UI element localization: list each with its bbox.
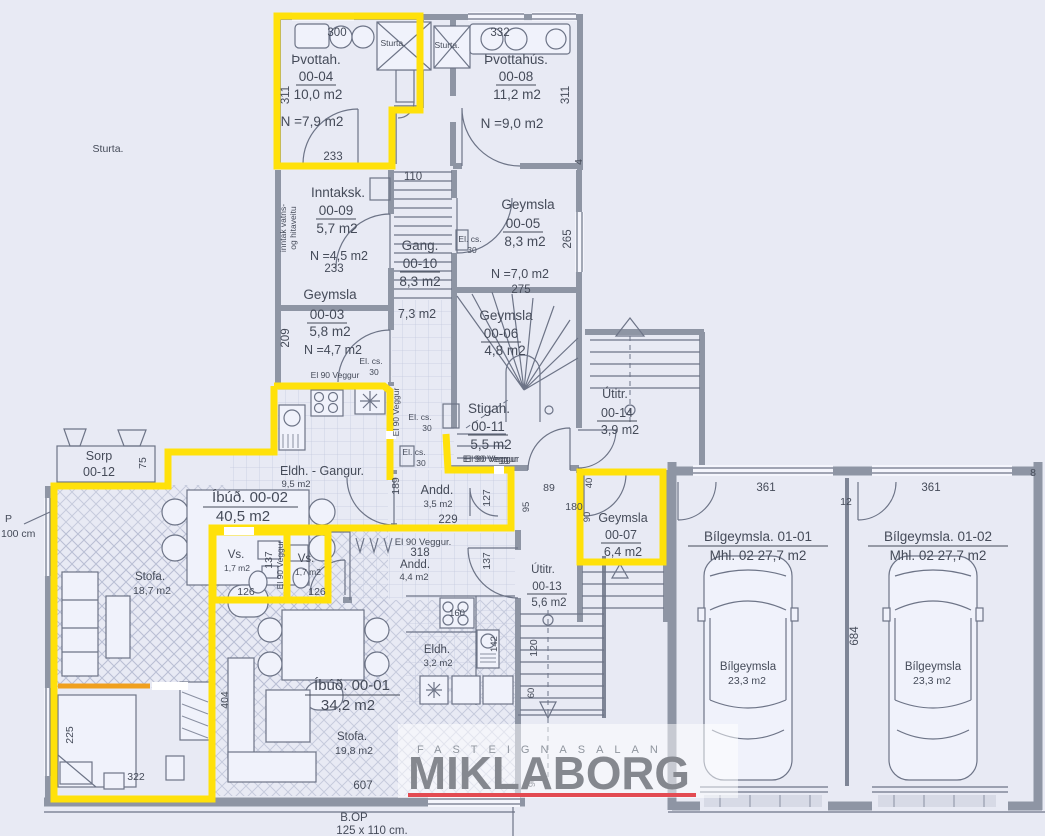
- garage-01-01-sub: Mhl. 02 27,7 m2: [710, 548, 807, 563]
- room-label-00-14-area: 3,9 m2: [601, 423, 639, 437]
- room-label-00-10-area2: 7,3 m2: [398, 307, 436, 321]
- room-label-eldh-01-area: 3,2 m2: [423, 658, 452, 669]
- window-top-2: [468, 12, 524, 21]
- el90-note: El 90 Veggur: [311, 370, 360, 380]
- el-cs-note: 30: [369, 367, 379, 377]
- garage-01-02-inner: Bílgeymsla: [905, 661, 962, 673]
- el-cs-note: 30: [467, 245, 477, 255]
- room-label-00-11-code: 00-11: [471, 419, 505, 434]
- rect-shape: [698, 608, 705, 621]
- el90-note: El 90 Veggur: [275, 540, 285, 589]
- room-label-andd35: Andd.: [421, 483, 454, 497]
- room-label-00-10-area: 8,3 m2: [399, 274, 440, 289]
- room-label-00-03-name: Geymsla: [303, 287, 357, 302]
- dim: 265: [562, 229, 574, 248]
- circle-shape: [258, 618, 282, 642]
- rect-shape: [976, 608, 983, 621]
- dim: 311: [560, 86, 572, 104]
- dim: 4: [573, 159, 585, 165]
- garage-01-02-title: Bílgeymsla. 01-02: [884, 529, 992, 544]
- room-label-00-13-name: Útitr.: [531, 563, 555, 576]
- room-label-eldh-gangur: Eldh. - Gangur.: [280, 464, 364, 478]
- room-label-00-10-code: 00-10: [403, 256, 438, 271]
- dim: 180: [565, 501, 583, 513]
- dim: 404: [219, 691, 231, 709]
- dim: 209: [280, 328, 292, 347]
- room-label-00-08-code: 00-08: [499, 69, 534, 84]
- dim: 318: [410, 547, 429, 559]
- circle-shape: [365, 618, 389, 642]
- room-label-00-07-code: 00-07: [605, 528, 637, 542]
- room-label-00-09-name: Inntaksk.: [311, 185, 365, 200]
- fridge-icon: [452, 676, 480, 704]
- dim: 89: [543, 482, 555, 494]
- room-label-vs2: Vs.: [298, 553, 315, 565]
- room-label-00-14-code: 00-14: [601, 406, 633, 420]
- garage-01-02-inner-area: 23,3 m2: [913, 675, 951, 687]
- room-label-00-05-net: N =7,0 m2: [491, 267, 549, 281]
- bop-label: B.OP: [340, 812, 368, 824]
- room-label-00-05-area: 8,3 m2: [504, 234, 545, 249]
- dim: 300: [327, 27, 346, 39]
- apartment-00-01-area: 34,2 m2: [321, 697, 375, 714]
- dim: 127: [481, 489, 493, 507]
- rect-shape: [62, 572, 98, 676]
- rect-shape: [575, 212, 584, 272]
- rect-shape: [166, 756, 184, 780]
- rect-shape: [872, 465, 1012, 476]
- el-cs-note: 30: [422, 423, 432, 433]
- room-label-00-12-name: Sorp: [86, 449, 112, 463]
- rect-shape: [228, 658, 254, 758]
- brand-logo-text: MIKLABORG: [408, 747, 690, 799]
- room-label-00-06-code: 00-06: [484, 326, 519, 341]
- rect-shape: [60, 762, 92, 784]
- room-label-stofa-01-area: 19,8 m2: [335, 745, 373, 757]
- room-label-vs1-area: 1,7 m2: [224, 563, 250, 573]
- rect-shape: [468, 12, 524, 21]
- intake-note: og hitaveitu: [288, 206, 298, 250]
- el90-note: El 90 Veggur: [391, 387, 401, 436]
- sturta-label: Sturta.: [93, 143, 124, 155]
- sink-basin-icon: [546, 29, 566, 49]
- room-label-00-05-name: Geymsla: [501, 197, 555, 212]
- room-label-00-12-code: 00-12: [83, 465, 115, 479]
- dim: 361: [756, 482, 775, 494]
- room-label-eldh-01: Eldh.: [424, 644, 450, 656]
- dim: 684: [849, 626, 861, 646]
- room-label-00-13-area: 5,6 m2: [531, 597, 566, 609]
- garage-01-01-inner: Bílgeymsla: [720, 661, 777, 673]
- room-label-andd44: Andd.: [400, 559, 430, 571]
- dining-table-icon: [282, 610, 364, 680]
- rect-shape: [791, 608, 798, 621]
- dim: 120: [528, 639, 540, 657]
- dim: 311: [280, 86, 292, 104]
- room-label-stofa-02: Stofa.: [135, 571, 165, 583]
- dim: 225: [64, 726, 76, 744]
- floor-plan-page: 300 332 311 311 4 233 110 233 275 265 20…: [0, 0, 1045, 836]
- room-label-00-04-name: Þvottah.: [291, 52, 341, 67]
- room-label-00-08-area: 11,2 m2: [493, 87, 541, 102]
- path-shape: [360, 391, 380, 411]
- circle-shape: [162, 499, 188, 525]
- dim: 126: [237, 586, 255, 598]
- room-label-00-11-name: Stigah.: [468, 401, 510, 416]
- room-label-stofa-02-area: 18,7 m2: [133, 585, 171, 597]
- room-label-vs2-area: 1,7 m2: [295, 567, 321, 577]
- room-label-andd35-area: 3,5 m2: [423, 499, 452, 510]
- dim: 126: [308, 586, 326, 598]
- room-label-00-04-net: N =7,9 m2: [281, 114, 344, 129]
- p-label: P: [5, 513, 12, 525]
- garage-window-1: [693, 465, 833, 476]
- room-label-andd44-area: 4,4 m2: [399, 572, 428, 583]
- path-shape: [426, 682, 442, 698]
- intake-note: inntak vatns-: [278, 204, 288, 252]
- bop-size-label: 125 x 110 cm.: [336, 825, 407, 836]
- room-label-00-09-net: N =4,5 m2: [310, 249, 368, 263]
- room-label-00-14-name: Útitr.: [602, 386, 628, 401]
- rect-shape: [180, 682, 210, 740]
- apartment-00-02-area: 40,5 m2: [216, 508, 270, 525]
- dim: 229: [438, 514, 457, 526]
- room-label-00-07-area: 6,4 m2: [604, 545, 642, 559]
- room-label-00-06-name: Geymsla: [479, 308, 533, 323]
- dim: 361: [921, 482, 940, 494]
- apartment-00-01-title: Íbúð. 00-01: [314, 677, 390, 694]
- circle-shape: [309, 499, 335, 525]
- dim: 12: [840, 496, 852, 508]
- room-label-00-13-code: 00-13: [532, 581, 561, 593]
- rect-shape: [883, 608, 890, 621]
- garage-01-02-sub: Mhl. 02 27,7 m2: [890, 548, 987, 563]
- room-label-00-03-net: N =4,7 m2: [304, 343, 362, 357]
- wardrobe-icon: [180, 682, 210, 740]
- washer-counter-icon: [295, 24, 329, 48]
- rect-shape: [228, 752, 316, 782]
- el-cs-note: El. cs.: [402, 447, 425, 457]
- room-label-00-08-net: N =9,0 m2: [481, 116, 544, 131]
- dim: 60: [526, 688, 537, 699]
- window-top-3: [532, 12, 576, 21]
- room-label-00-11-area: 5,5 m2: [470, 437, 511, 452]
- dim: 40: [584, 478, 595, 489]
- garage-01-01-inner-area: 23,3 m2: [728, 675, 766, 687]
- room-label-00-09-code: 00-09: [319, 203, 354, 218]
- dim: 137: [263, 551, 275, 569]
- room-label-00-08-name: Þvottahús.: [484, 52, 548, 67]
- garage-01-01-title: Bílgeymsla. 01-01: [704, 529, 812, 544]
- ottoman-icon: [266, 690, 310, 742]
- apartment-00-02-title: Íbúð. 00-02: [212, 489, 288, 506]
- p-size-label: 100 cm: [1, 528, 36, 540]
- dim: 160: [449, 608, 465, 619]
- dim: 189: [390, 477, 402, 495]
- room-label-00-03-code: 00-03: [310, 307, 345, 322]
- room-label-00-06-area: 4,8 m2: [484, 343, 525, 358]
- garage-window-2: [872, 465, 1012, 476]
- fridge-icon: [483, 676, 513, 704]
- window-right-265: [575, 212, 584, 272]
- sturta-label: Sturta.: [434, 40, 459, 50]
- el-cs-note: El. cs.: [408, 412, 431, 422]
- dim: 233: [324, 263, 343, 275]
- dim: 90: [582, 512, 593, 523]
- rect-shape: [693, 465, 833, 476]
- dim: 275: [511, 284, 530, 296]
- el-cs-note: El. cs.: [359, 356, 382, 366]
- dim: 8: [1030, 467, 1036, 479]
- dim: 332: [490, 27, 509, 39]
- dim: 233: [323, 151, 342, 163]
- room-label-00-04-code: 00-04: [299, 69, 334, 84]
- coffee-table-icon: [106, 596, 130, 658]
- room-label-00-09-area: 5,7 m2: [316, 221, 357, 236]
- dim: 110: [404, 171, 422, 183]
- room-label-00-04-area: 10,0 m2: [294, 87, 343, 102]
- dim: 142: [489, 636, 500, 652]
- room-label-00-03-area: 5,8 m2: [309, 324, 350, 339]
- floor-plan-svg: 300 332 311 311 4 233 110 233 275 265 20…: [0, 0, 1045, 836]
- room-label-00-07-name: Geymsla: [598, 511, 647, 525]
- sturta-label: Sturta.: [380, 38, 405, 48]
- rect-shape: [532, 12, 576, 21]
- rect-shape: [878, 795, 996, 807]
- dim: 607: [353, 780, 372, 792]
- dim: 322: [127, 771, 145, 783]
- brand-watermark: FASTEIGNASALAN MIKLABORG: [398, 724, 738, 799]
- el90-note: El 90 Veggur: [463, 454, 517, 465]
- circle-shape: [365, 652, 389, 676]
- el-cs-note: 30: [416, 458, 426, 468]
- room-label-00-10-name: Gang.: [402, 238, 439, 253]
- el90-note: El 90 Veggur.: [395, 537, 452, 548]
- dim: 75: [137, 457, 149, 469]
- dim: 137: [481, 552, 493, 570]
- washing-machine-icon: [352, 26, 374, 48]
- room-label-vs1: Vs.: [228, 549, 245, 561]
- room-label-00-05-code: 00-05: [506, 216, 541, 231]
- el-cs-note: El. cs.: [458, 234, 481, 244]
- rect-shape: [104, 773, 124, 789]
- room-label-stofa-01: Stofa.: [337, 731, 367, 743]
- dim: 95: [521, 502, 532, 513]
- circle-shape: [258, 652, 282, 676]
- circle-shape: [162, 535, 188, 561]
